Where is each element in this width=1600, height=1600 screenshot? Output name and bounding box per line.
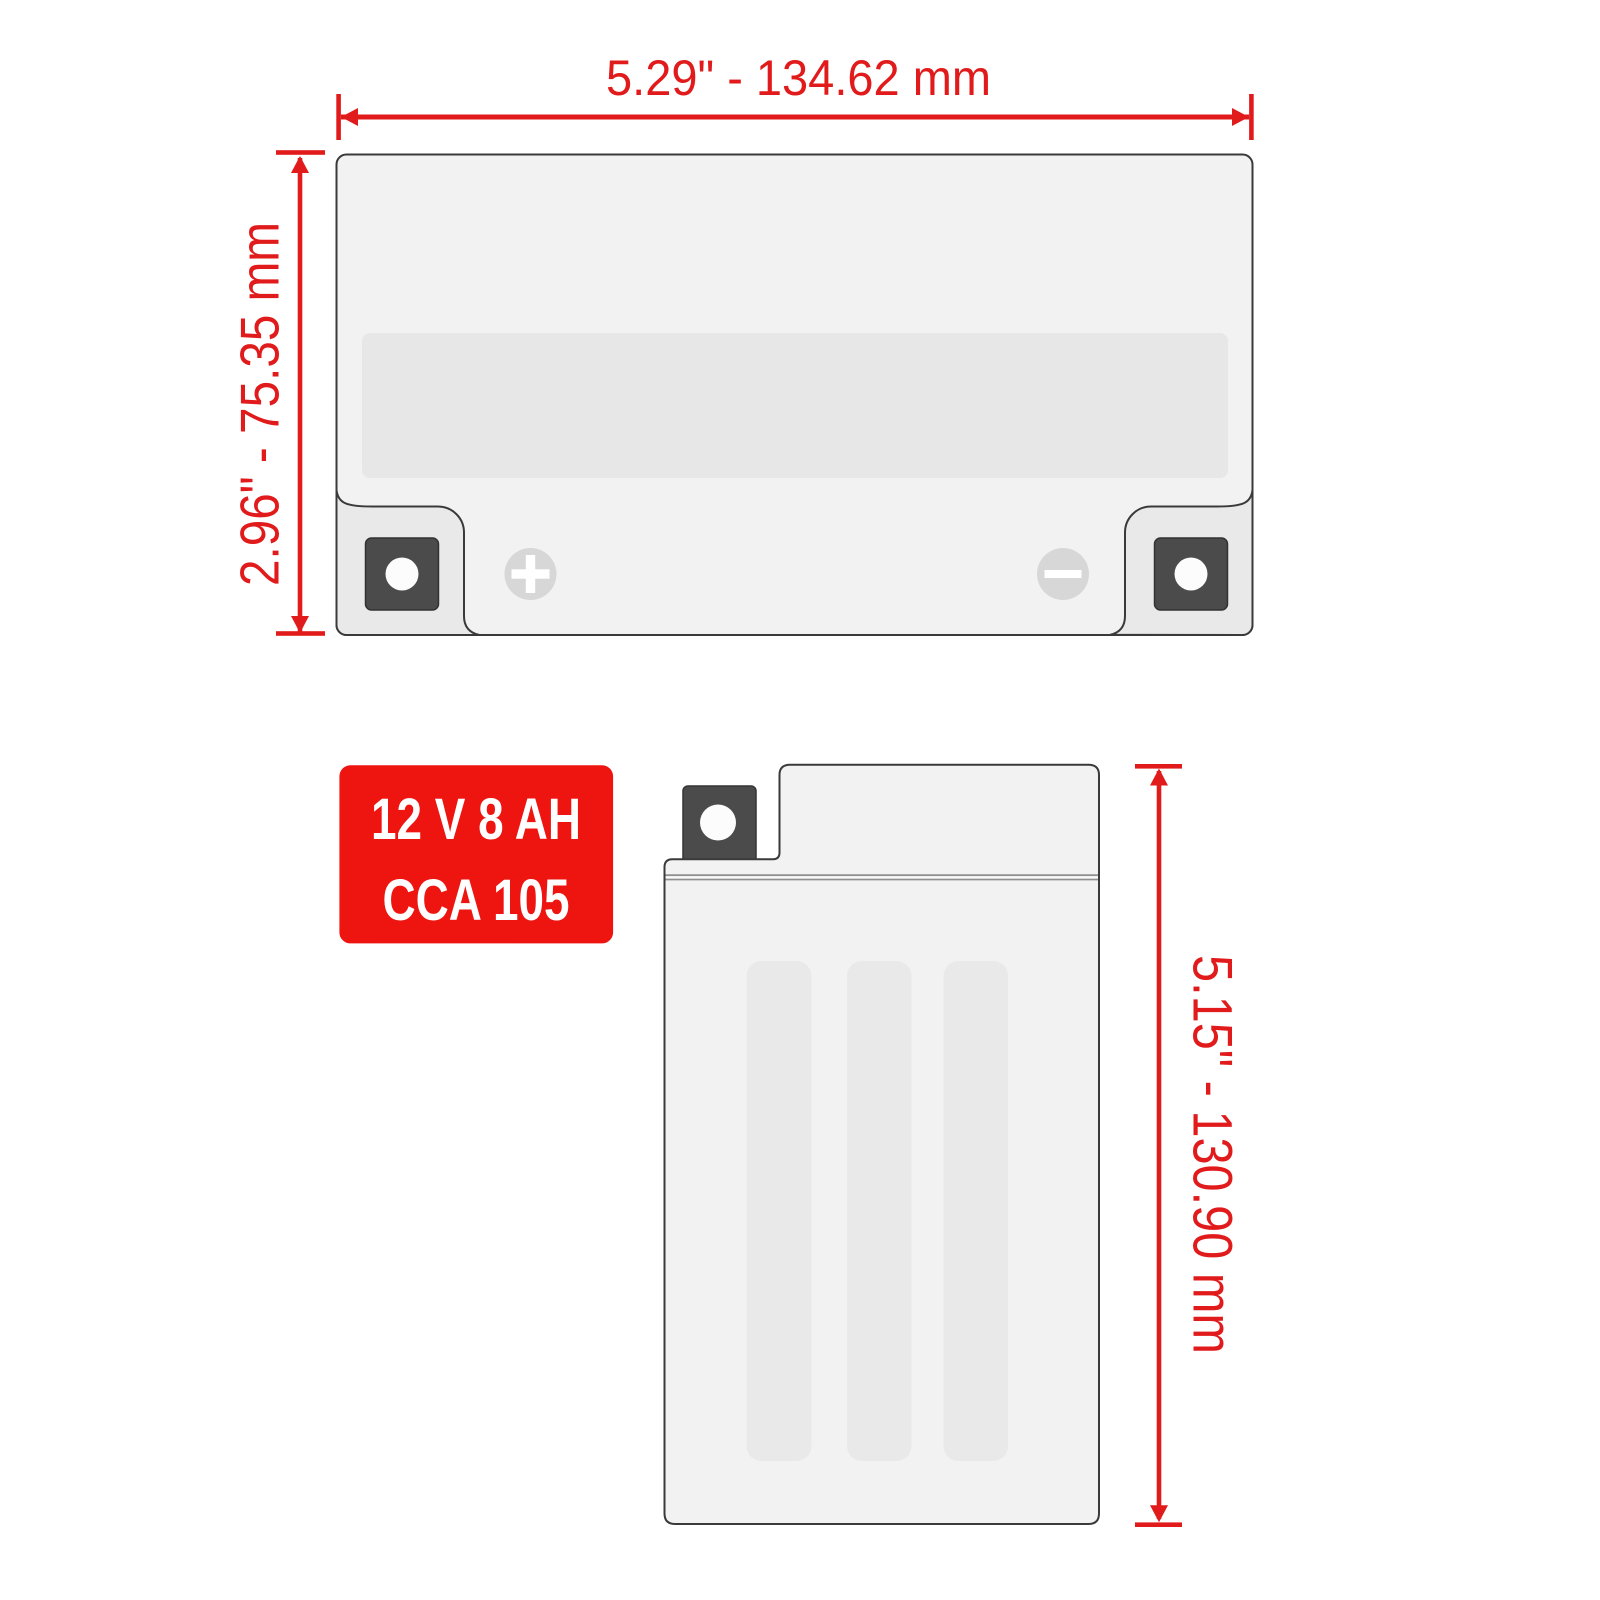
- svg-text:CCA 105: CCA 105: [383, 868, 570, 933]
- svg-text:5.29" - 134.62 mm: 5.29" - 134.62 mm: [606, 50, 991, 106]
- svg-text:2.96" - 75.35 mm: 2.96" - 75.35 mm: [229, 222, 291, 586]
- svg-text:5.15" - 130.90 mm: 5.15" - 130.90 mm: [1182, 955, 1245, 1354]
- svg-text:12 V 8 AH: 12 V 8 AH: [371, 787, 581, 852]
